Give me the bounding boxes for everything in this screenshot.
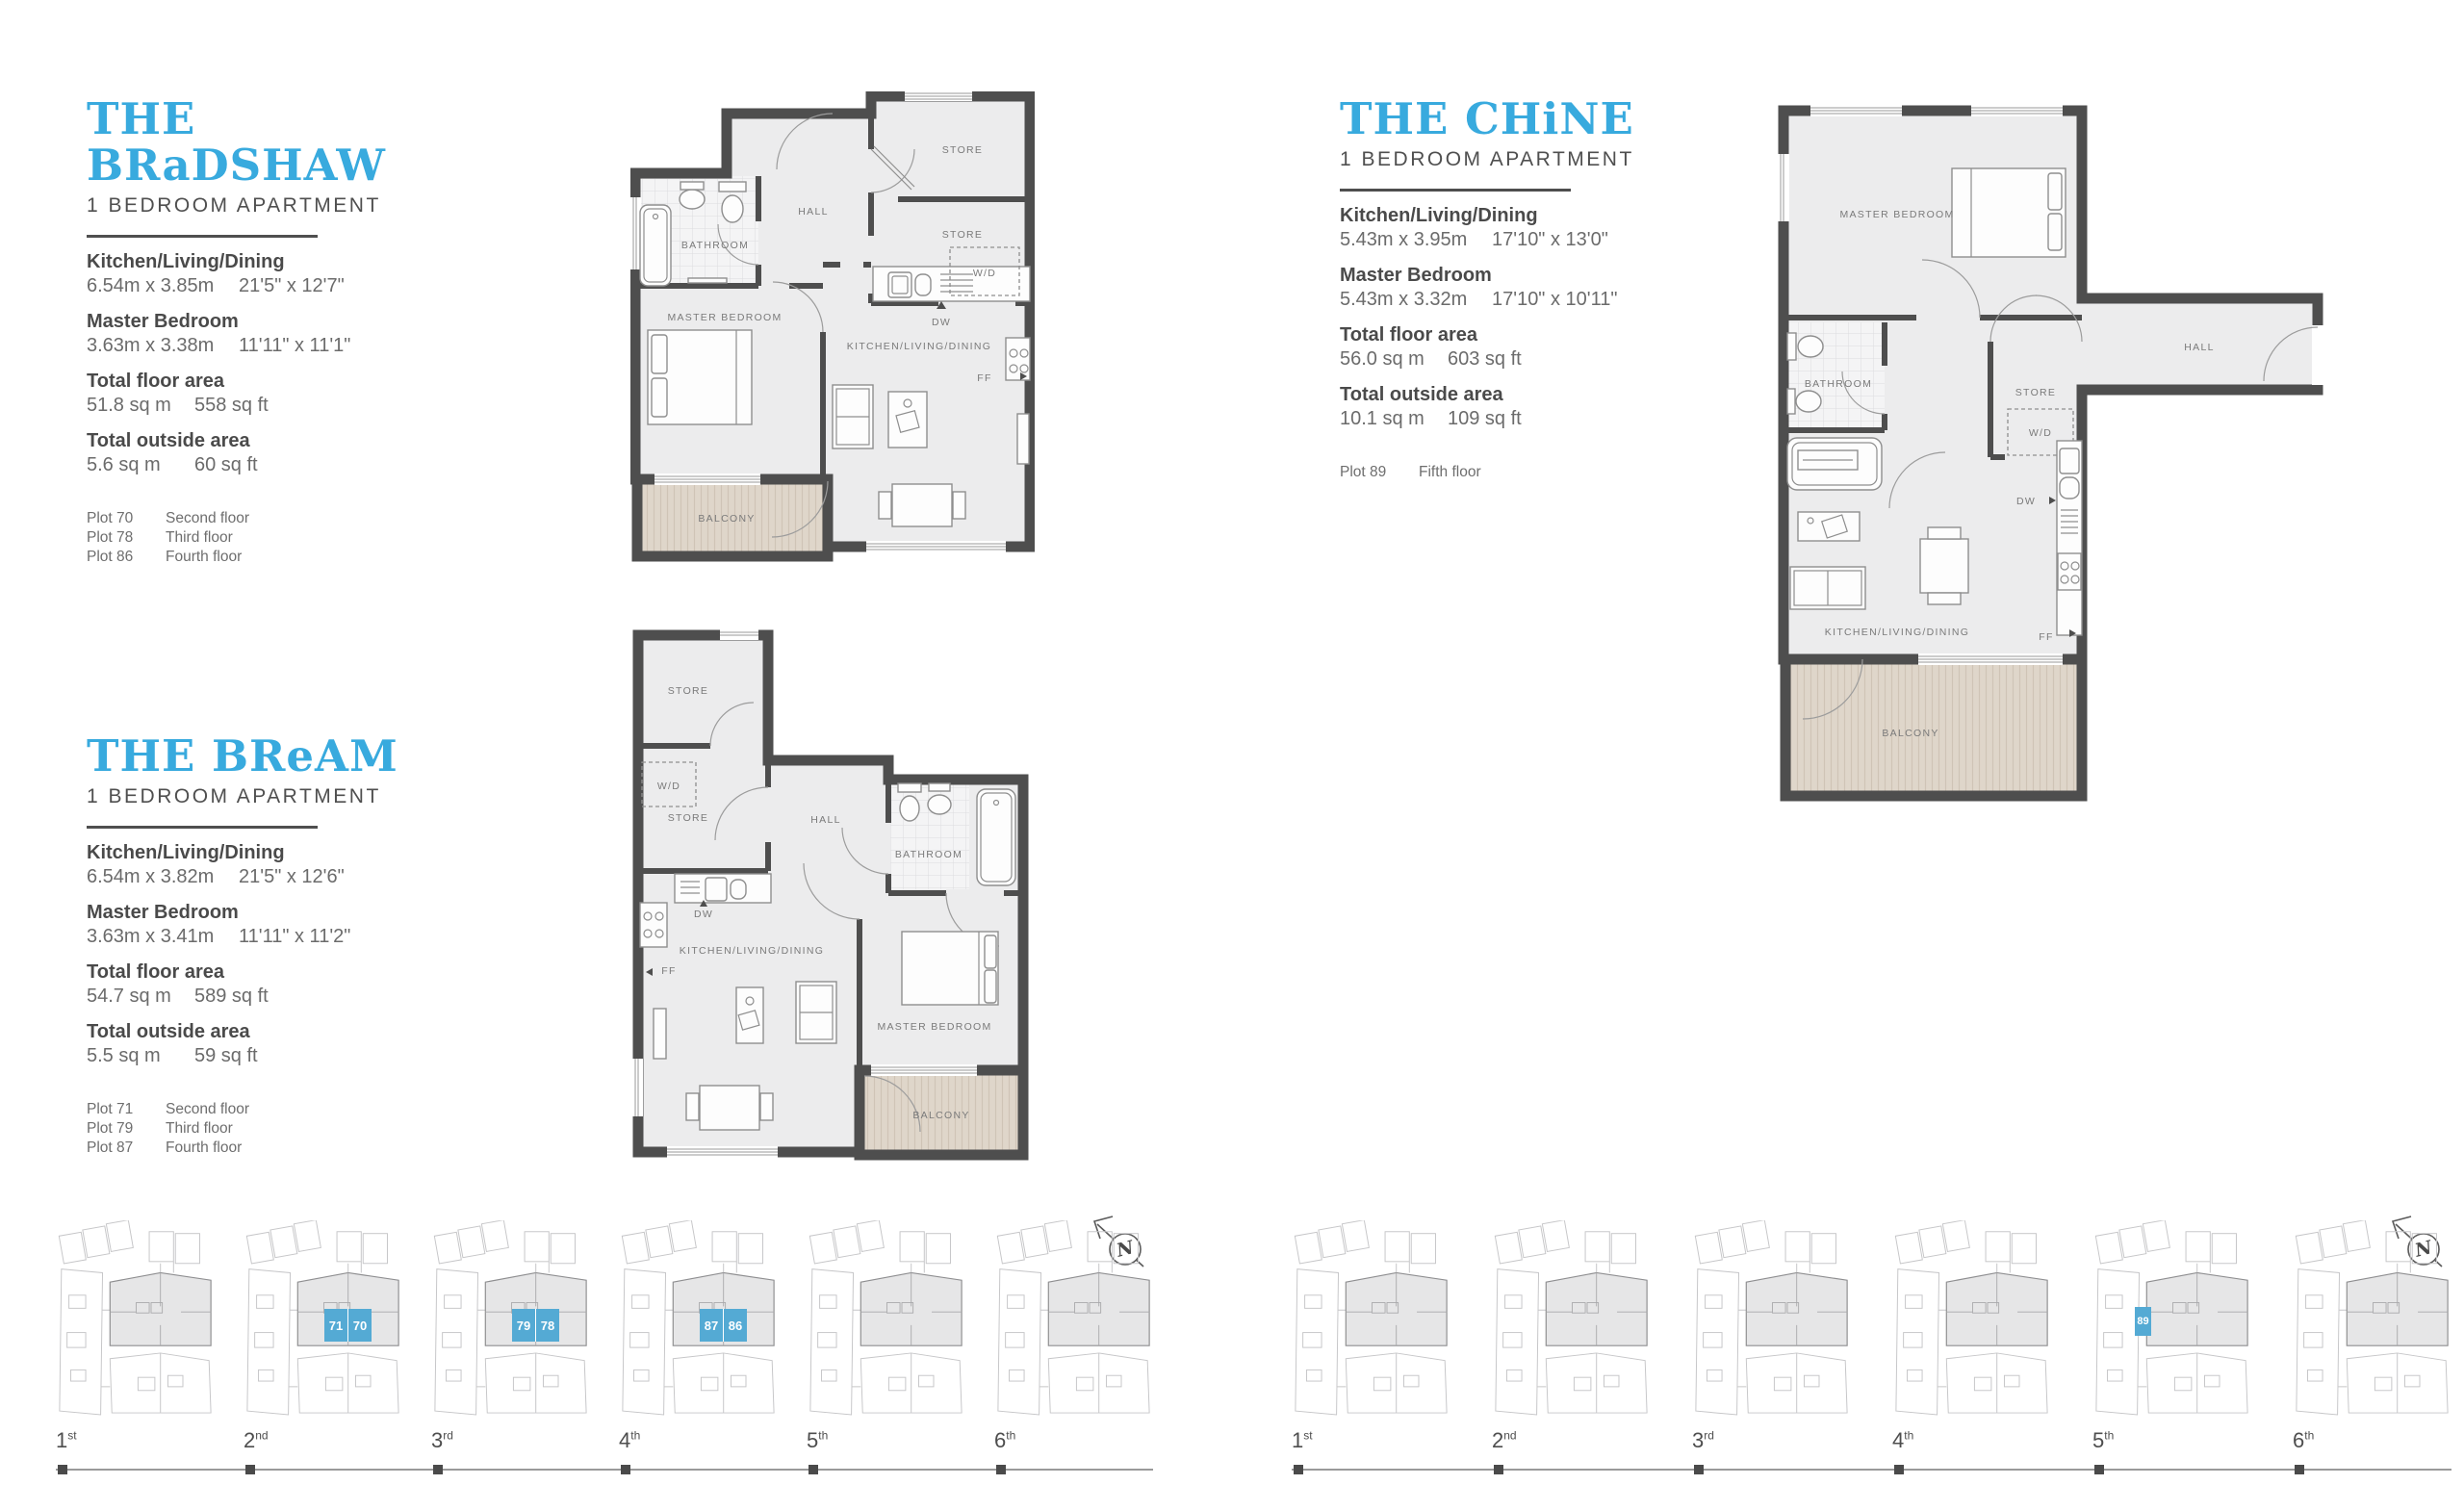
floor-locator-5th: 5th — [807, 1220, 965, 1453]
room-label: DW — [694, 909, 713, 920]
room-label: MASTER BEDROOM — [1839, 209, 1954, 220]
room-label: MASTER BEDROOM — [877, 1021, 991, 1033]
floor-locator-6th: 6th — [994, 1220, 1153, 1453]
room-label: BATHROOM — [1805, 378, 1872, 390]
plot-highlight: 87 — [700, 1309, 724, 1342]
spec-metric: 5.43m x 3.32m — [1340, 289, 1492, 311]
brochure-page: THE BRaDSHAW 1 BEDROOM APARTMENT Kitchen… — [0, 0, 2464, 1485]
floor-label: 6th — [2293, 1428, 2451, 1453]
spec-label: Kitchen/Living/Dining — [1340, 205, 1657, 227]
room-label: KITCHEN/LIVING/DINING — [1825, 627, 1969, 638]
area-imperial: 59 sq ft — [194, 1045, 258, 1067]
plot-list: Plot 71Second floor Plot 79Third floor P… — [87, 1100, 404, 1158]
room-label: HALL — [2184, 342, 2214, 353]
bream-floorplan: STORE W/D STORE HALL BATHROOM DW FF KITC… — [629, 626, 1042, 1163]
floor-label: 2nd — [1492, 1428, 1651, 1453]
spec-row: Master Bedroom 3.63m x 3.41m11'11" x 11'… — [87, 902, 404, 948]
floor-locator-5th: 89 5th — [2092, 1220, 2251, 1453]
spec-label: Kitchen/Living/Dining — [87, 842, 404, 864]
area-metric: 10.1 sq m — [1340, 408, 1448, 430]
floor-label: 1st — [56, 1428, 215, 1453]
floor-locator-2nd: 2nd — [1492, 1220, 1651, 1453]
area-metric: 5.5 sq m — [87, 1045, 194, 1067]
spec-row: Master Bedroom 5.43m x 3.32m17'10" x 10'… — [1340, 265, 1657, 311]
timeline-tick — [58, 1465, 67, 1474]
room-label: STORE — [942, 229, 983, 241]
plot-floor: Fifth floor — [1419, 463, 1481, 482]
area-row: Total floor area 51.8 sq m558 sq ft — [87, 371, 404, 417]
timeline-tick — [433, 1465, 443, 1474]
apartment-subtitle: 1 BEDROOM APARTMENT — [87, 194, 404, 218]
bradshaw-floorplan: HALL BATHROOM MASTER BEDROOM KITCHEN/LIV… — [630, 91, 1035, 565]
area-label: Total outside area — [1340, 384, 1657, 406]
plot-highlight: 70 — [348, 1309, 372, 1342]
plot-row: Plot 86Fourth floor — [87, 548, 404, 567]
plot-number: Plot 86 — [87, 548, 166, 567]
room-label: STORE — [2015, 387, 2056, 398]
area-imperial: 109 sq ft — [1448, 408, 1522, 430]
spec-row: Master Bedroom 3.63m x 3.38m11'11" x 11'… — [87, 311, 404, 357]
room-label: HALL — [810, 814, 840, 826]
spec-imperial: 21'5" x 12'7" — [239, 275, 345, 297]
plot-floor: Third floor — [166, 528, 233, 548]
apartment-info-bradshaw: THE BRaDSHAW 1 BEDROOM APARTMENT Kitchen… — [87, 96, 404, 567]
room-label: FF — [2039, 631, 2053, 643]
spec-label: Master Bedroom — [87, 902, 404, 924]
plot-number: Plot 79 — [87, 1119, 166, 1139]
floor-label: 5th — [807, 1428, 965, 1453]
room-label: STORE — [668, 812, 708, 824]
floor-locator-group-right: N 1st 2nd 3rd 4th 89 5th — [1292, 1220, 2451, 1453]
plot-number: Plot 87 — [87, 1139, 166, 1158]
timeline-tick — [996, 1465, 1006, 1474]
plot-number: Plot 89 — [1340, 463, 1419, 482]
area-row: Total outside area 5.6 sq m60 sq ft — [87, 430, 404, 476]
room-label: W/D — [2029, 427, 2052, 439]
room-label: FF — [661, 965, 676, 977]
room-label: STORE — [942, 144, 983, 156]
spec-imperial: 11'11" x 11'1" — [239, 335, 350, 357]
room-label: BATHROOM — [895, 849, 962, 860]
room-label: DW — [932, 317, 951, 328]
area-label: Total floor area — [87, 961, 404, 984]
plot-highlight: 71 — [324, 1309, 348, 1342]
spec-label: Kitchen/Living/Dining — [87, 251, 404, 273]
floor-label: 2nd — [244, 1428, 402, 1453]
room-label: BATHROOM — [681, 240, 749, 251]
area-label: Total floor area — [1340, 324, 1657, 346]
area-row: Total outside area 10.1 sq m109 sq ft — [1340, 384, 1657, 430]
timeline-tick — [2295, 1465, 2304, 1474]
plot-row: Plot 78Third floor — [87, 528, 404, 548]
area-row: Total outside area 5.5 sq m59 sq ft — [87, 1021, 404, 1067]
plot-highlight: 86 — [724, 1309, 747, 1342]
timeline — [1292, 1469, 2451, 1471]
plot-list: Plot 70Second floor Plot 78Third floor P… — [87, 509, 404, 567]
area-metric: 51.8 sq m — [87, 395, 194, 417]
plot-row: Plot 89Fifth floor — [1340, 463, 1657, 482]
room-label: BALCONY — [912, 1110, 969, 1121]
spec-metric: 3.63m x 3.38m — [87, 335, 239, 357]
timeline-tick — [2094, 1465, 2104, 1474]
plot-number: Plot 71 — [87, 1100, 166, 1119]
timeline — [56, 1469, 1153, 1471]
plot-number: Plot 70 — [87, 509, 166, 528]
room-label: DW — [2016, 496, 2036, 507]
plot-row: Plot 71Second floor — [87, 1100, 404, 1119]
spec-imperial: 21'5" x 12'6" — [239, 866, 345, 888]
room-label: STORE — [668, 685, 708, 697]
room-label: BALCONY — [698, 513, 755, 525]
apartment-subtitle: 1 BEDROOM APARTMENT — [87, 785, 404, 808]
floor-locator-2nd: 71 70 2nd — [244, 1220, 402, 1453]
room-label: KITCHEN/LIVING/DINING — [847, 341, 991, 352]
area-imperial: 603 sq ft — [1448, 348, 1522, 371]
floor-label: 3rd — [1692, 1428, 1851, 1453]
plot-highlight: 89 — [2135, 1307, 2151, 1336]
floor-locator-4th: 4th — [1892, 1220, 2051, 1453]
timeline-tick — [1694, 1465, 1704, 1474]
floor-locator-1st: 1st — [1292, 1220, 1450, 1453]
floor-locator-group-left: N 1st 71 70 2nd 79 78 3rd 87 8 — [56, 1220, 1153, 1453]
plot-row: Plot 79Third floor — [87, 1119, 404, 1139]
spec-row: Kitchen/Living/Dining 6.54m x 3.82m21'5"… — [87, 842, 404, 888]
timeline-tick — [621, 1465, 630, 1474]
floor-label: 1st — [1292, 1428, 1450, 1453]
area-row: Total floor area 56.0 sq m603 sq ft — [1340, 324, 1657, 371]
plot-row: Plot 70Second floor — [87, 509, 404, 528]
floor-label: 3rd — [431, 1428, 590, 1453]
area-metric: 54.7 sq m — [87, 986, 194, 1008]
room-label: MASTER BEDROOM — [667, 312, 782, 323]
spec-label: Master Bedroom — [87, 311, 404, 333]
divider — [1340, 189, 1571, 192]
apartment-title: THE BRaDSHAW — [87, 96, 404, 189]
timeline-tick — [1494, 1465, 1503, 1474]
apartment-title: THE CHiNE — [1340, 96, 1657, 142]
floor-locator-4th: 87 86 4th — [619, 1220, 778, 1453]
divider — [87, 235, 318, 238]
area-row: Total floor area 54.7 sq m589 sq ft — [87, 961, 404, 1008]
timeline-tick — [245, 1465, 255, 1474]
spec-imperial: 11'11" x 11'2" — [239, 926, 350, 948]
spec-metric: 3.63m x 3.41m — [87, 926, 239, 948]
spec-imperial: 17'10" x 13'0" — [1492, 229, 1608, 251]
area-metric: 56.0 sq m — [1340, 348, 1448, 371]
timeline-tick — [808, 1465, 818, 1474]
floor-label: 4th — [619, 1428, 778, 1453]
spec-metric: 6.54m x 3.85m — [87, 275, 239, 297]
timeline-tick — [1894, 1465, 1904, 1474]
area-imperial: 589 sq ft — [194, 986, 269, 1008]
area-metric: 5.6 sq m — [87, 454, 194, 476]
apartment-title: THE BReAM — [87, 733, 404, 780]
chine-floorplan: MASTER BEDROOM BATHROOM STORE W/D HALL K… — [1774, 96, 2327, 804]
plot-row: Plot 87Fourth floor — [87, 1139, 404, 1158]
spec-imperial: 17'10" x 10'11" — [1492, 289, 1617, 311]
floor-locator-3rd: 79 78 3rd — [431, 1220, 590, 1453]
plot-list: Plot 89Fifth floor — [1340, 463, 1657, 482]
room-label: W/D — [657, 781, 680, 792]
floor-label: 5th — [2092, 1428, 2251, 1453]
room-label: HALL — [798, 206, 828, 218]
apartment-info-chine: THE CHiNE 1 BEDROOM APARTMENT Kitchen/Li… — [1340, 96, 1657, 482]
room-label: FF — [977, 372, 991, 384]
apartment-subtitle: 1 BEDROOM APARTMENT — [1340, 148, 1657, 171]
spec-row: Kitchen/Living/Dining 5.43m x 3.95m17'10… — [1340, 205, 1657, 251]
area-label: Total floor area — [87, 371, 404, 393]
room-label: W/D — [973, 268, 996, 279]
plot-floor: Fourth floor — [166, 1139, 242, 1158]
divider — [87, 826, 318, 829]
plot-highlight: 79 — [512, 1309, 536, 1342]
area-label: Total outside area — [87, 1021, 404, 1043]
floor-label: 6th — [994, 1428, 1153, 1453]
floor-locator-6th: 6th — [2293, 1220, 2451, 1453]
plot-number: Plot 78 — [87, 528, 166, 548]
area-label: Total outside area — [87, 430, 404, 452]
room-label: KITCHEN/LIVING/DINING — [680, 945, 824, 957]
plot-floor: Second floor — [166, 509, 249, 528]
floor-label: 4th — [1892, 1428, 2051, 1453]
spec-metric: 5.43m x 3.95m — [1340, 229, 1492, 251]
apartment-info-bream: THE BReAM 1 BEDROOM APARTMENT Kitchen/Li… — [87, 733, 404, 1158]
plot-floor: Third floor — [166, 1119, 233, 1139]
spec-label: Master Bedroom — [1340, 265, 1657, 287]
plot-floor: Second floor — [166, 1100, 249, 1119]
plot-floor: Fourth floor — [166, 548, 242, 567]
floor-locator-1st: 1st — [56, 1220, 215, 1453]
area-imperial: 60 sq ft — [194, 454, 258, 476]
room-label: BALCONY — [1882, 728, 1938, 739]
spec-metric: 6.54m x 3.82m — [87, 866, 239, 888]
spec-row: Kitchen/Living/Dining 6.54m x 3.85m21'5"… — [87, 251, 404, 297]
floor-locator-3rd: 3rd — [1692, 1220, 1851, 1453]
timeline-tick — [1294, 1465, 1303, 1474]
plot-highlight: 78 — [536, 1309, 559, 1342]
area-imperial: 558 sq ft — [194, 395, 269, 417]
